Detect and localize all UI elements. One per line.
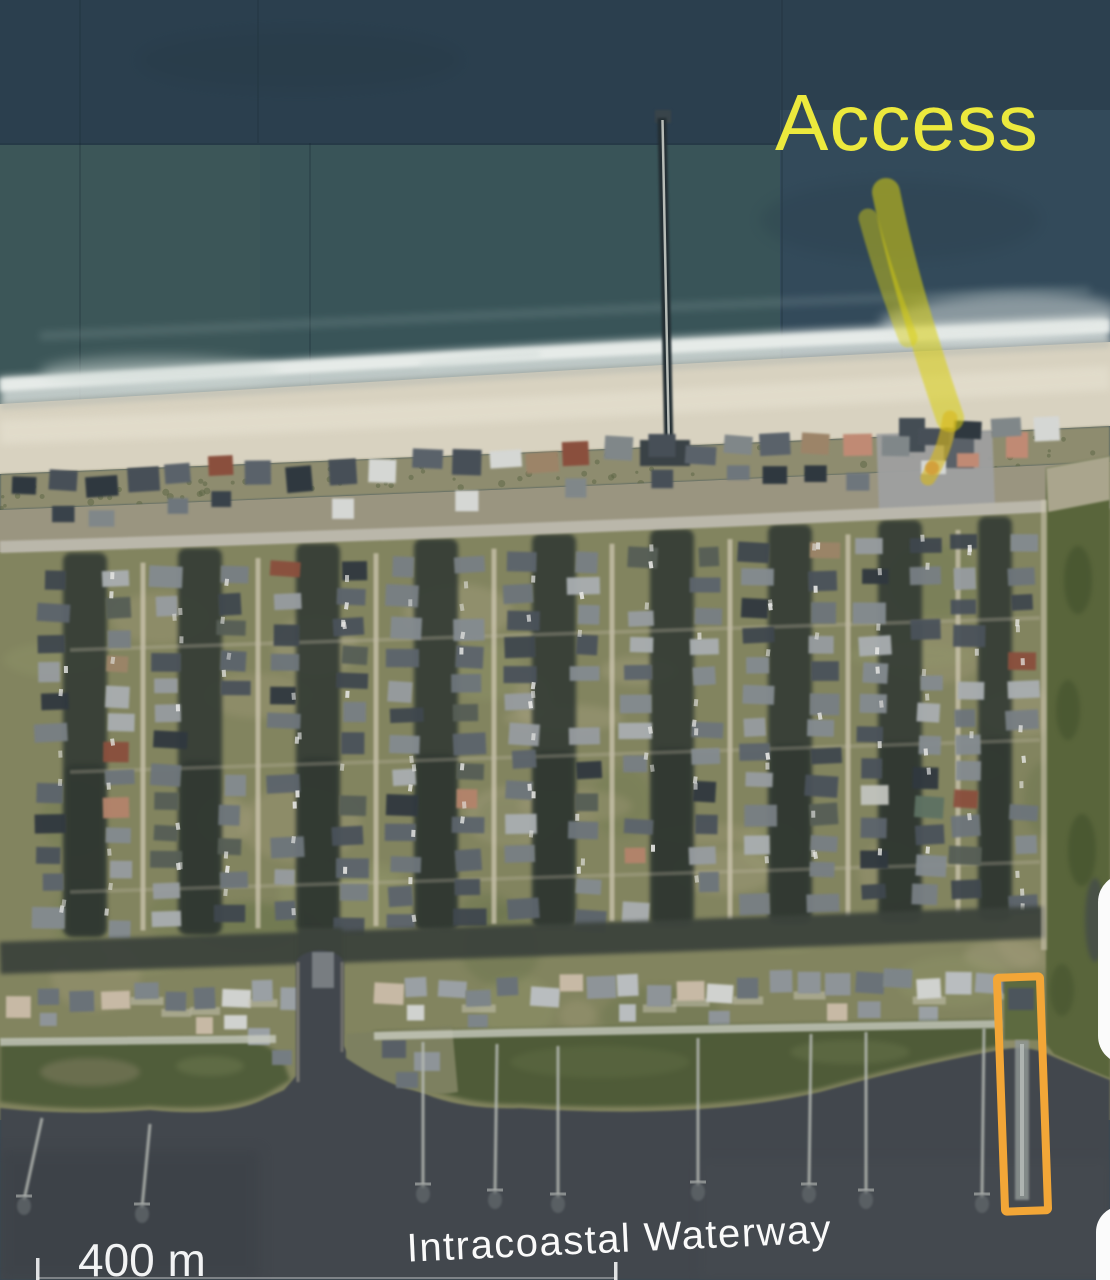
ui-button-partial-top[interactable] bbox=[1098, 874, 1110, 1064]
access-label: Access bbox=[775, 78, 1039, 167]
scale-label: 400 m bbox=[78, 1234, 206, 1280]
satellite-map-view[interactable]: Access Intracoastal Waterway 400 m bbox=[0, 0, 1110, 1280]
